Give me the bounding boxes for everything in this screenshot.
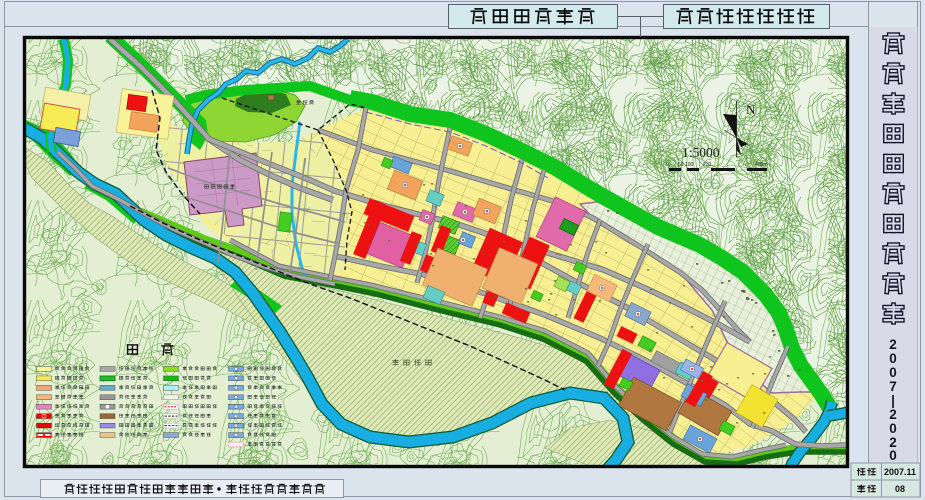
svg-text:08: 08 [895, 484, 905, 494]
svg-text:0: 0 [666, 162, 669, 168]
svg-text:2007.11: 2007.11 [884, 467, 916, 477]
svg-text:1:5000: 1:5000 [682, 145, 720, 160]
svg-text:50 100: 50 100 [678, 162, 694, 168]
svg-text:400m: 400m [755, 162, 768, 168]
svg-text:200: 200 [703, 162, 712, 168]
svg-text:N: N [746, 102, 756, 117]
